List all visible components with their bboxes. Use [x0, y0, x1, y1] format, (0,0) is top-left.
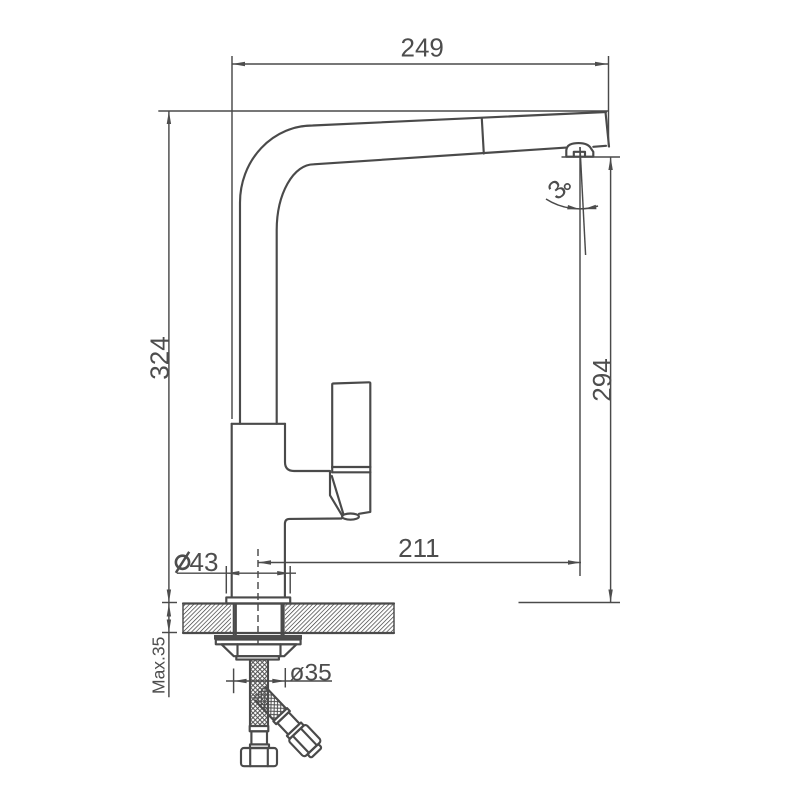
svg-text:ø35: ø35	[290, 660, 332, 687]
svg-text:294: 294	[587, 358, 617, 401]
svg-text:249: 249	[401, 33, 444, 63]
svg-text:324: 324	[144, 336, 174, 379]
svg-text:43: 43	[190, 547, 219, 577]
svg-text:Max.35: Max.35	[149, 637, 169, 694]
svg-text:211: 211	[398, 533, 439, 563]
